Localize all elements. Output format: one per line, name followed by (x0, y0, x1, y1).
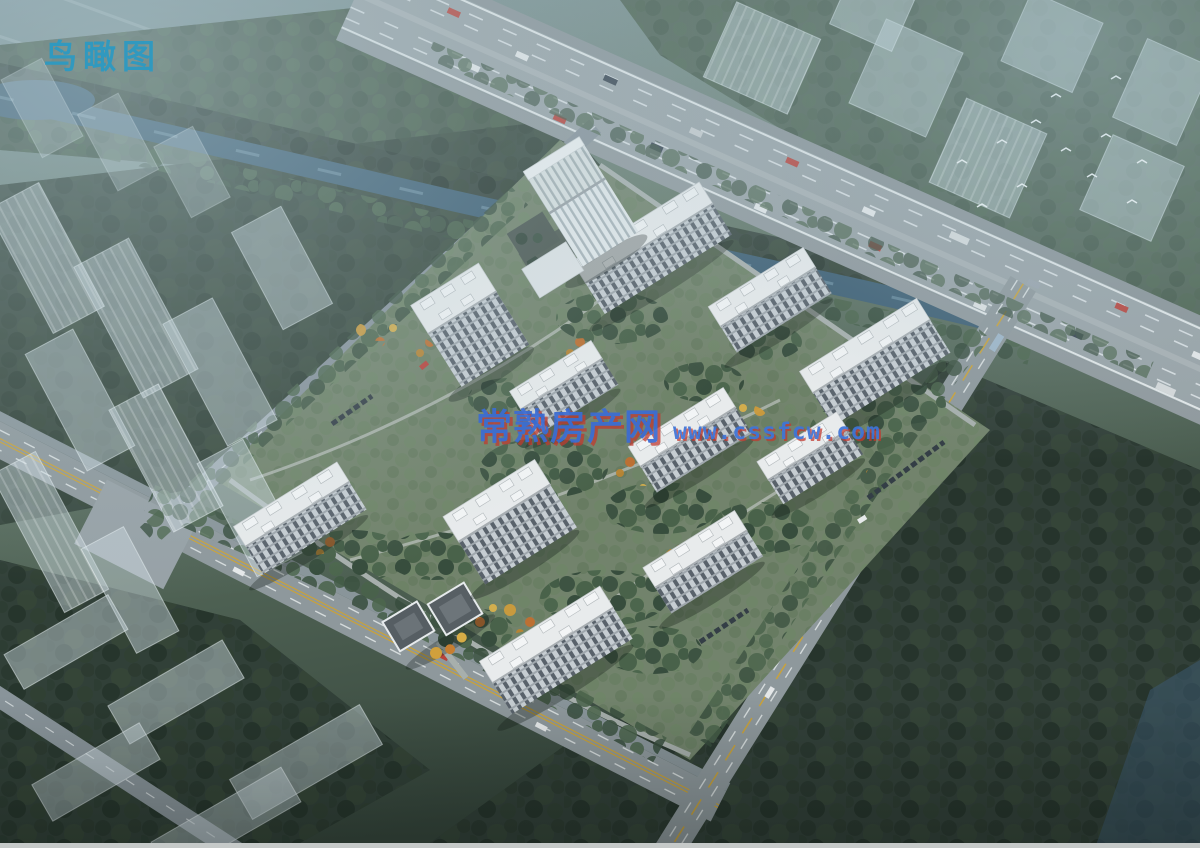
aerial-rendering: 鸟瞰图 常熟房产网www.cssfcw.com (0, 0, 1200, 848)
bottom-border-strip (0, 843, 1200, 848)
watermark-site-name: 常熟房产网 (476, 407, 661, 448)
watermark: 常熟房产网www.cssfcw.com (476, 398, 881, 450)
view-label: 鸟瞰图 (44, 30, 161, 78)
watermark-url: www.cssfcw.com (673, 419, 881, 445)
